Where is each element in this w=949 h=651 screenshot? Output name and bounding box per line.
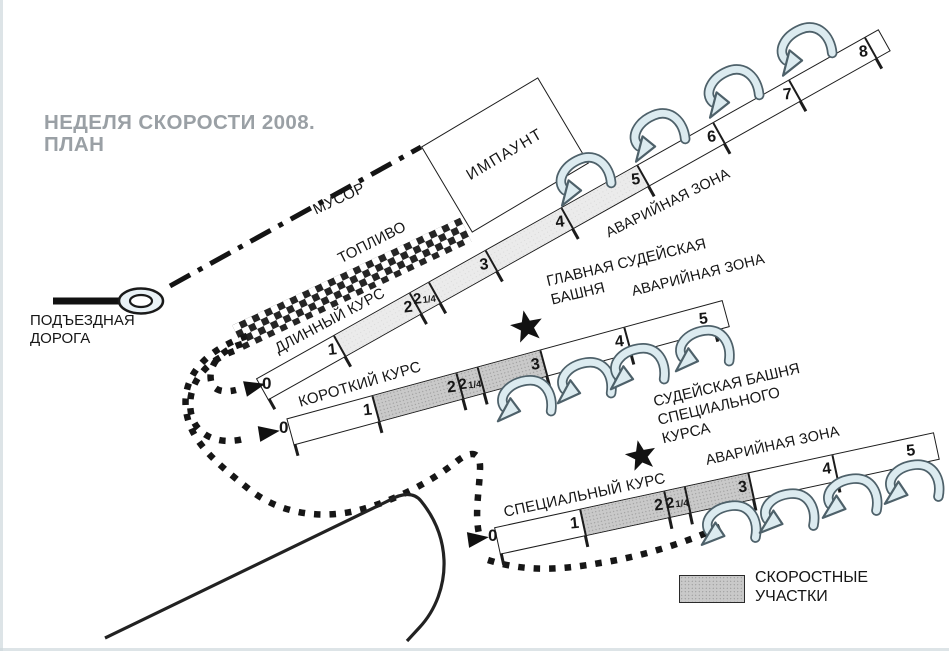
- road-end-oval-inner: [130, 295, 152, 307]
- marker-tick: [722, 143, 730, 155]
- course-marker: 5: [666, 306, 711, 342]
- marker-tick: [419, 313, 427, 325]
- marker-tick: [629, 353, 635, 365]
- course-marker: 7: [751, 82, 797, 122]
- access-road-label: ПОДЪЕЗДНАЯ ДОРОГА: [30, 312, 135, 348]
- legend-speed-section-swatch: [679, 575, 745, 603]
- main-tower-star-icon: [508, 307, 546, 344]
- long-course-start-zero: 0: [262, 374, 271, 394]
- perimeter-road: [105, 495, 444, 642]
- legend-label: СКОРОСТНЫЕ УЧАСТКИ: [755, 568, 868, 606]
- trash-label: МУСОР: [310, 179, 367, 218]
- course-marker: 5: [599, 168, 645, 208]
- course-marker: 2: [621, 492, 666, 526]
- title-line-1: НЕДЕЛЯ СКОРОСТИ 2008.: [44, 112, 315, 134]
- marker-tick: [583, 535, 588, 547]
- marker-tick: [751, 499, 756, 511]
- course-marker: 3: [705, 474, 750, 508]
- short-course-start-zero: 0: [279, 418, 288, 438]
- marker-tick: [835, 480, 840, 492]
- title-line-2: ПЛАН: [44, 134, 315, 156]
- special-course-start-zero: 0: [488, 526, 497, 546]
- marker-tick: [267, 398, 275, 410]
- marker-tick: [495, 271, 503, 283]
- short-course-start-arrow-icon: [258, 423, 281, 442]
- marker-tick: [688, 512, 693, 524]
- special-tower-star-icon: [623, 437, 659, 472]
- lane-to-short-course: [190, 351, 247, 441]
- special-course-start-arrow-icon: [467, 529, 490, 548]
- marker-tick: [293, 444, 299, 456]
- marker-tick: [874, 58, 882, 70]
- marker-tick: [499, 553, 504, 565]
- main-judges-tower-label: ГЛАВНАЯ СУДЕЙСКАЯ БАШНЯ: [545, 234, 713, 309]
- marker-tick: [571, 228, 579, 240]
- marker-tick: [482, 393, 488, 405]
- course-marker: 5: [873, 438, 918, 472]
- marker-tick: [713, 330, 719, 342]
- course-marker: 6: [675, 125, 721, 165]
- course-marker: 8: [827, 40, 873, 80]
- course-marker: 1: [330, 397, 375, 433]
- marker-tick: [461, 398, 467, 410]
- speed-week-plan: ИМПАУНТ 1 2 21/4 3 4 5 6 7 8: [0, 0, 949, 651]
- marker-tick: [438, 302, 446, 314]
- page-title: НЕДЕЛЯ СКОРОСТИ 2008. ПЛАН: [44, 112, 315, 156]
- impound-label: ИМПАУНТ: [463, 125, 546, 184]
- course-marker: 4: [582, 329, 627, 365]
- scan-edge-left: [0, 0, 3, 651]
- course-marker: 3: [498, 352, 543, 388]
- road-end-oval-outer: [119, 289, 163, 314]
- marker-tick: [647, 185, 655, 197]
- marker-tick: [377, 421, 383, 433]
- marker-tick: [798, 100, 806, 112]
- marker-tick: [545, 375, 551, 387]
- course-marker: 2: [414, 374, 459, 410]
- lane-to-special-course: [186, 336, 481, 538]
- course-marker: 1: [537, 511, 582, 545]
- lane-to-long-course: [211, 344, 242, 391]
- marker-tick: [667, 517, 672, 529]
- course-marker: 4: [789, 456, 834, 490]
- marker-tick: [343, 356, 351, 368]
